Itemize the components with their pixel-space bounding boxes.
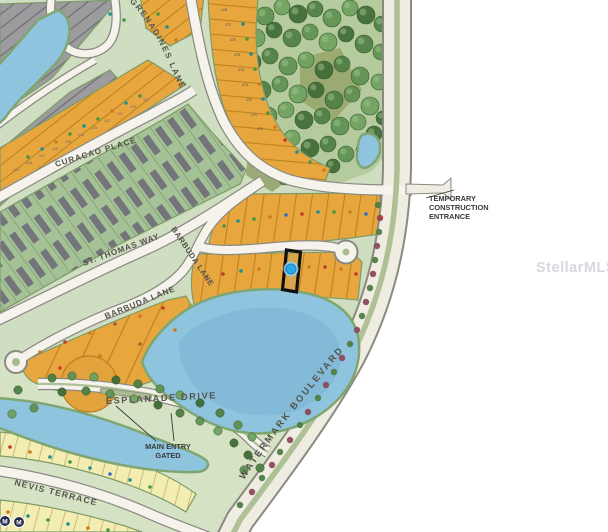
shrub-icon (331, 369, 337, 375)
tree-highlight (282, 60, 289, 67)
tree-icon (289, 5, 307, 23)
lot-number: 122 (104, 119, 110, 123)
lot-number-dot (26, 514, 30, 518)
lot-number-dot (54, 140, 58, 144)
lot-number-dot (88, 466, 92, 470)
lot-number-dot (239, 269, 243, 273)
lot-number-dot (128, 478, 132, 482)
tree-highlight (274, 78, 280, 84)
shrub-icon (277, 449, 283, 455)
lot-number-dot (108, 12, 112, 16)
tree-highlight (322, 138, 328, 144)
lot-number-dot (236, 219, 240, 223)
tree-highlight (376, 18, 382, 24)
lot-number-dot (364, 212, 368, 216)
lot-number-dot (68, 460, 72, 464)
shrub-icon (297, 422, 303, 428)
tree-highlight (328, 94, 335, 101)
tree-icon (289, 85, 307, 103)
tree-icon (361, 97, 379, 115)
lot-number: 125 (65, 140, 71, 144)
lot-number: 128 (26, 161, 32, 165)
tree-icon (283, 29, 301, 47)
tree-icon (295, 111, 313, 129)
tree-icon (176, 409, 184, 417)
tree-icon (274, 0, 290, 15)
lot-number-dot (26, 155, 30, 159)
tree-icon (314, 108, 330, 124)
tree-icon (344, 86, 360, 102)
lot-number-dot (66, 522, 70, 526)
tree-highlight (286, 32, 293, 39)
lot-number: 170 (257, 127, 263, 131)
svg-text:GATED: GATED (155, 451, 181, 460)
tree-highlight (259, 10, 266, 17)
tree-icon (338, 146, 354, 162)
tree-highlight (334, 120, 341, 127)
lot-number: 175 (234, 53, 240, 57)
tree-icon (112, 376, 120, 384)
lot-number-dot (156, 12, 160, 16)
lot-number-dot (113, 322, 117, 326)
shrub-icon (375, 202, 381, 208)
lot-number-dot (283, 138, 287, 142)
lot-number-dot (257, 82, 261, 86)
lot-number-dot (8, 445, 12, 449)
lot-number-dot (266, 111, 270, 115)
lot-number-dot (165, 25, 169, 29)
lot-number-dot (58, 366, 62, 370)
lot-number-dot (273, 125, 277, 129)
tree-icon (331, 117, 349, 135)
lot-number-dot (28, 450, 32, 454)
tree-highlight (304, 26, 310, 32)
lot-number-dot (48, 455, 52, 459)
shrub-icon (372, 257, 378, 263)
lot-number-dot (108, 472, 112, 476)
tree-icon (334, 56, 350, 72)
svg-text:TEMPORARY: TEMPORARY (429, 194, 476, 203)
lot-number-dot (106, 528, 110, 532)
tree-icon (307, 1, 323, 17)
shrub-icon (367, 285, 373, 291)
lot-number: 178 (221, 8, 227, 12)
shrub-icon (359, 313, 365, 319)
lot-number-dot (124, 101, 128, 105)
tree-highlight (318, 64, 325, 71)
listing-site-plan-map: 1291281271261251241231221211201191781771… (0, 0, 608, 532)
tree-icon (234, 421, 242, 429)
shrub-icon (315, 395, 321, 401)
tree-highlight (375, 46, 381, 52)
tree-highlight (346, 88, 352, 94)
tree-highlight (304, 142, 311, 149)
tree-icon (320, 136, 336, 152)
lot-number: 126 (52, 147, 58, 151)
tree-icon (14, 386, 22, 394)
tree-icon (90, 373, 98, 381)
lot-number: 174 (238, 68, 244, 72)
shrub-icon (363, 299, 369, 305)
tree-icon (196, 417, 204, 425)
tree-highlight (310, 84, 316, 90)
lot-number-dot (322, 168, 326, 172)
tree-highlight (264, 50, 270, 56)
lot-number-dot (354, 272, 358, 276)
tree-icon (308, 82, 324, 98)
shrub-icon (237, 502, 243, 508)
subject-marker (286, 264, 296, 274)
site-plan-svg: 1291281271261251241231221211201191781771… (0, 0, 608, 532)
lot-number-dot (245, 37, 249, 41)
lot-number: 176 (230, 38, 236, 42)
lot-number-dot (249, 52, 253, 56)
tree-highlight (364, 100, 371, 107)
svg-text:M: M (2, 519, 7, 526)
lot-number: 124 (78, 133, 84, 137)
tree-icon (82, 387, 90, 395)
tree-highlight (326, 12, 333, 19)
lot-number: 120 (130, 105, 136, 109)
roundabout-island (12, 358, 20, 366)
tree-highlight (340, 148, 346, 154)
tree-highlight (268, 24, 274, 30)
lot-number: 172 (246, 98, 252, 102)
lot-number-dot (63, 340, 67, 344)
lot-number-dot (96, 117, 100, 121)
lot-number-dot (138, 94, 142, 98)
mls-watermark: StellarMLS (536, 260, 608, 276)
culdesac-island (343, 249, 350, 256)
lot-number-dot (222, 224, 226, 228)
tree-icon (298, 52, 314, 68)
tree-highlight (336, 58, 342, 64)
shrub-icon (269, 462, 275, 468)
lot-number: 127 (39, 154, 45, 158)
tree-icon (30, 404, 38, 412)
svg-text:ENTRANCE: ENTRANCE (429, 212, 470, 221)
tree-icon (256, 464, 264, 472)
tree-icon (302, 24, 318, 40)
lot-number-dot (82, 124, 86, 128)
shrub-icon (370, 271, 376, 277)
tree-icon (216, 409, 224, 417)
tree-highlight (276, 1, 282, 7)
tree-icon (68, 372, 76, 380)
tree-highlight (344, 2, 350, 8)
tree-icon (214, 427, 222, 435)
shrub-icon (347, 341, 353, 347)
tree-icon (342, 0, 358, 16)
svg-text:MAIN ENTRY: MAIN ENTRY (145, 442, 191, 451)
lot-number-dot (148, 485, 152, 489)
tree-highlight (340, 28, 346, 34)
shrub-icon (354, 327, 360, 333)
tree-icon (230, 439, 238, 447)
tree-highlight (352, 116, 358, 122)
lot-number: 123 (91, 126, 97, 130)
shrub-icon (374, 243, 380, 249)
lot-number: 171 (251, 113, 257, 117)
tree-icon (58, 388, 66, 396)
lot-number-dot (86, 526, 90, 530)
lot-number-dot (268, 215, 272, 219)
lot-number-dot (284, 213, 288, 217)
tree-icon (319, 33, 337, 51)
lot-number-dot (174, 38, 178, 42)
lot-number-dot (46, 518, 50, 522)
lot-number-dot (221, 272, 225, 276)
shrub-icon (305, 409, 311, 415)
lot-number-dot (252, 217, 256, 221)
lot-number-dot (6, 510, 10, 514)
tree-highlight (280, 104, 286, 110)
shrub-icon (323, 382, 329, 388)
lot-number-dot (122, 18, 126, 22)
tree-icon (272, 76, 288, 92)
svg-text:CONSTRUCTION: CONSTRUCTION (429, 203, 489, 212)
lot-number-dot (110, 109, 114, 113)
subject-property (283, 250, 301, 292)
tree-highlight (360, 9, 367, 16)
tree-highlight (292, 88, 299, 95)
lot-number-dot (38, 350, 42, 354)
tree-highlight (316, 110, 322, 116)
lot-number-dot (295, 150, 299, 154)
lot-number-dot (308, 160, 312, 164)
tree-icon (325, 91, 343, 109)
svg-text:M: M (16, 520, 21, 527)
tree-icon (357, 6, 375, 24)
shrub-icon (259, 475, 265, 481)
lot-number: 121 (117, 112, 123, 116)
lot-number-dot (307, 265, 311, 269)
lot-number-dot (173, 328, 177, 332)
tree-highlight (309, 3, 315, 9)
tree-icon (279, 57, 297, 75)
lot-number-dot (88, 331, 92, 335)
tree-icon (156, 385, 164, 393)
tree-highlight (358, 38, 365, 45)
lot-number-dot (379, 216, 383, 220)
tree-icon (278, 102, 294, 118)
tree-icon (48, 374, 56, 382)
lot-number-dot (316, 210, 320, 214)
tree-highlight (300, 54, 306, 60)
tree-icon (350, 114, 366, 130)
lot-number-dot (68, 132, 72, 136)
tree-highlight (354, 70, 361, 77)
lot-number-dot (40, 147, 44, 151)
tree-highlight (298, 114, 305, 121)
lot-number: 173 (242, 83, 248, 87)
tree-icon (351, 67, 369, 85)
lot-number-dot (257, 267, 261, 271)
tree-icon (134, 380, 142, 388)
shrub-icon (287, 437, 293, 443)
tree-icon (266, 22, 282, 38)
tree-icon (323, 9, 341, 27)
temporary-construction-entrance-label: TEMPORARY CONSTRUCTION ENTRANCE (426, 190, 489, 221)
lot-number-dot (339, 267, 343, 271)
lot-number-dot (253, 67, 257, 71)
lot-number-dot (241, 22, 245, 26)
tree-icon (8, 410, 16, 418)
lot-number-dot (261, 97, 265, 101)
tree-highlight (328, 161, 333, 166)
shrub-icon (249, 489, 255, 495)
lot-number: 177 (225, 23, 231, 27)
lot-number: 119 (143, 98, 149, 102)
tree-icon (338, 26, 354, 42)
tree-icon (262, 48, 278, 64)
shrub-icon (376, 229, 382, 235)
tree-highlight (322, 36, 329, 43)
lot-number-dot (138, 314, 142, 318)
tree-icon (315, 61, 333, 79)
lot-number-dot (98, 354, 102, 358)
tree-highlight (292, 8, 299, 15)
lot-number-dot (300, 212, 304, 216)
lot-number-dot (161, 306, 165, 310)
lot-number-dot (323, 265, 327, 269)
lot-number-dot (332, 210, 336, 214)
tree-highlight (373, 76, 379, 82)
tree-icon (248, 433, 256, 441)
lot-number-dot (138, 342, 142, 346)
lot-number-dot (348, 210, 352, 214)
lot-number: 129 (13, 168, 19, 172)
tree-icon (355, 35, 373, 53)
